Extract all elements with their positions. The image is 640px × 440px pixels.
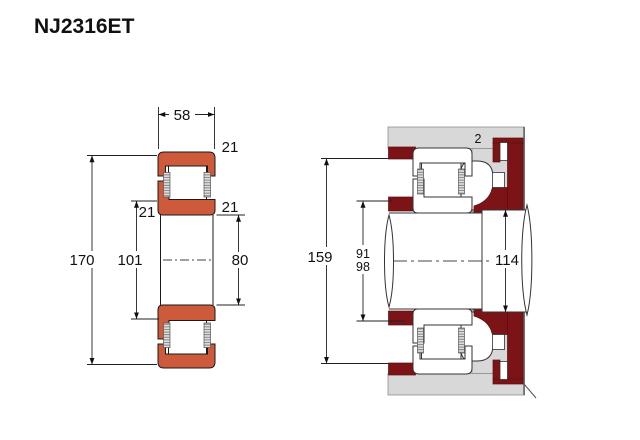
right-view-arrangement: 159 91 98 114 2	[305, 127, 536, 398]
shaft-break-left	[385, 215, 394, 307]
width-label: 58	[174, 107, 191, 124]
dim-outside-diameter-170: 170	[69, 156, 157, 365]
shaft-abutment-upper-label: 91	[356, 247, 370, 261]
housing-shoulder-abutment	[389, 147, 416, 159]
shaft-abutment-lower-label: 98	[356, 260, 370, 274]
clearance-label: 2	[475, 132, 482, 146]
rib-diameter-label: 101	[117, 252, 142, 269]
dim-bore-80: 80	[217, 215, 251, 305]
roller-right-view	[422, 163, 462, 197]
housing-abutment-label: 159	[307, 249, 332, 266]
cage-right-right-view	[459, 169, 465, 194]
cage-right	[204, 173, 211, 198]
shaft-spacer-abutment	[389, 197, 416, 211]
cage-left-right-view	[418, 169, 424, 194]
page-title: NJ2316ET	[34, 15, 135, 38]
bore-diameter-label: 80	[232, 252, 249, 269]
right-view-lower-section	[388, 309, 525, 395]
housing-corner-edge	[524, 384, 536, 398]
left-view-cross-section: 58 21 21 21 170 101 80	[69, 106, 250, 368]
corner-top-right-label: 21	[222, 139, 239, 156]
corner-mid-right-label: 21	[222, 199, 239, 216]
corner-mid-left-label: 21	[139, 204, 156, 221]
dim-width-58: 58	[159, 106, 215, 149]
shoulder-diameter-label: 114	[495, 252, 519, 269]
cap-groove-slot	[500, 143, 508, 161]
bearing-drawing-page: NJ2316ET 58 21 21 21	[0, 0, 640, 440]
outside-diameter-label: 170	[69, 252, 94, 269]
roller	[169, 166, 207, 200]
cap-notch	[493, 173, 505, 188]
dim-housing-abutment-159: 159	[305, 159, 389, 364]
left-view-lower-section	[158, 305, 215, 368]
cage-left	[164, 173, 171, 198]
right-view-upper-section	[388, 127, 525, 213]
left-view-upper-section	[158, 152, 215, 215]
drawing-canvas: NJ2316ET 58 21 21 21	[0, 0, 640, 440]
